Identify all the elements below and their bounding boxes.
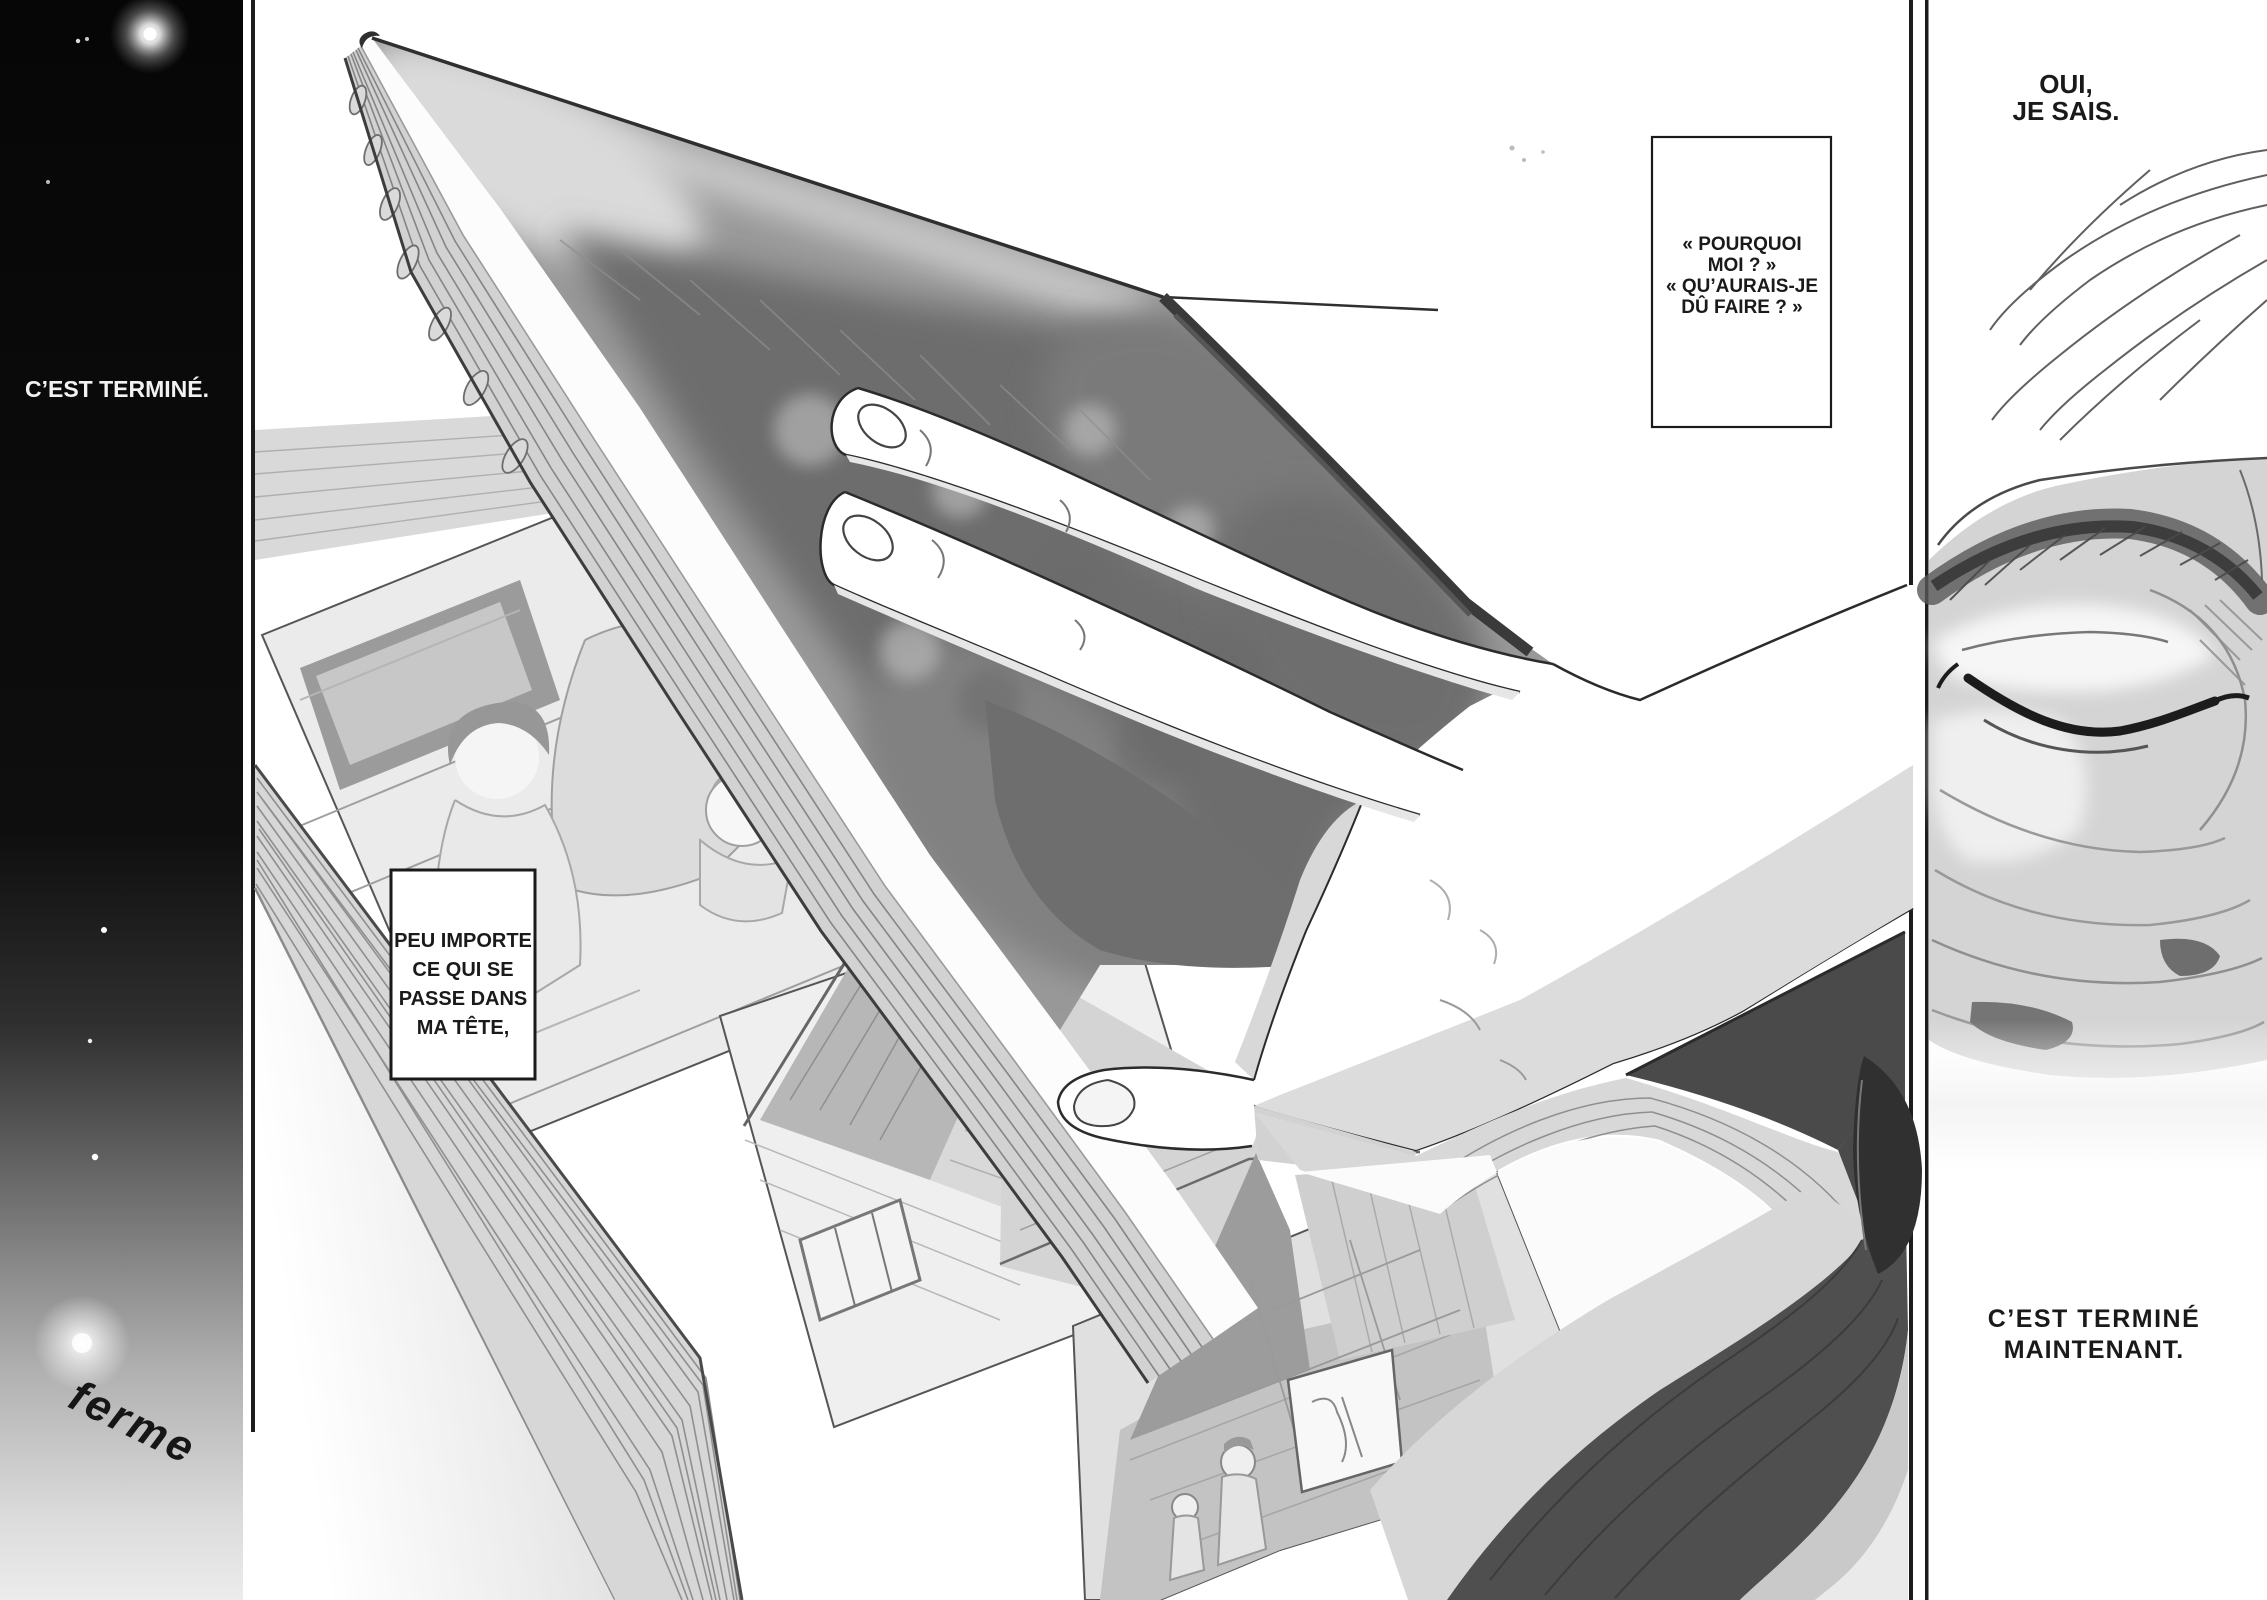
svg-text:« POURQUOI: « POURQUOI	[1682, 234, 1801, 255]
svg-text:CE QUI SE: CE QUI SE	[412, 959, 513, 981]
svg-text:PASSE DANS: PASSE DANS	[399, 988, 528, 1010]
svg-text:MOI ? »: MOI ? »	[1708, 255, 1777, 276]
svg-text:MAINTENANT.: MAINTENANT.	[2004, 1336, 2184, 1364]
svg-text:JE SAIS.: JE SAIS.	[2013, 96, 2120, 126]
svg-text:DÛ FAIRE ? »: DÛ FAIRE ? »	[1681, 296, 1802, 318]
svg-text:C’EST TERMINÉ: C’EST TERMINÉ	[1988, 1304, 2201, 1333]
svg-text:OUI,: OUI,	[2039, 69, 2092, 99]
svg-text:« QU’AURAIS-JE: « QU’AURAIS-JE	[1666, 276, 1818, 297]
svg-text:MA TÊTE,: MA TÊTE,	[417, 1015, 510, 1039]
svg-text:PEU IMPORTE: PEU IMPORTE	[394, 930, 532, 952]
svg-text:C’EST TERMINÉ.: C’EST TERMINÉ.	[25, 375, 209, 402]
